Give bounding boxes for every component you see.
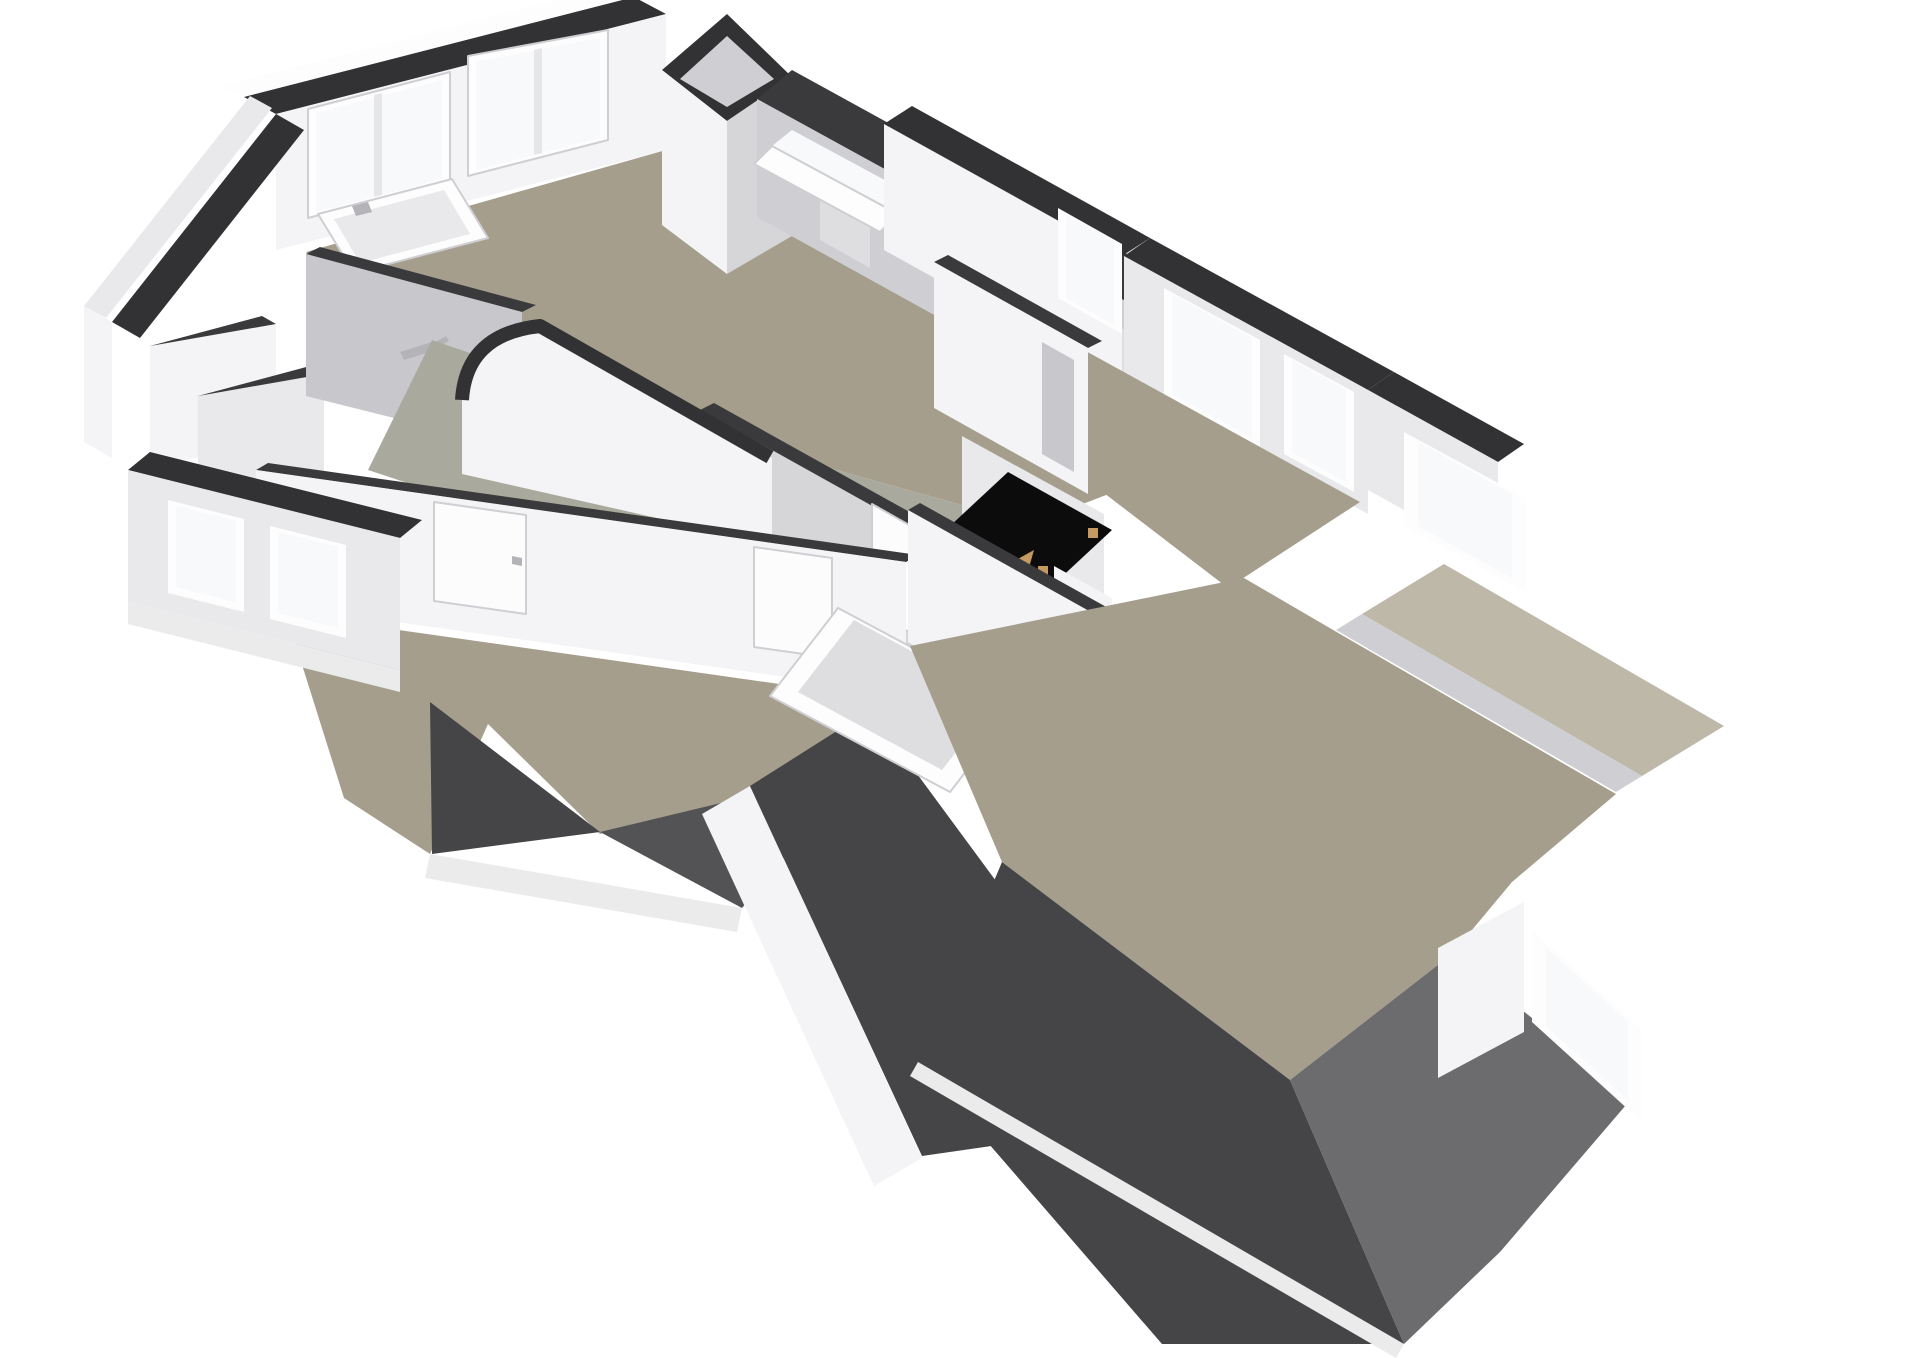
bedroom2-window-b-glass: [278, 532, 338, 628]
floorplan-scene-svg: [0, 0, 1920, 1358]
west-outer-face: [84, 306, 112, 458]
west-gable-cap: [112, 114, 304, 338]
bath-window-2-mullion: [534, 48, 542, 155]
bath-window-1-mullion: [374, 93, 382, 197]
bedroom1-door-opening: [1042, 342, 1074, 472]
floorplan-3d-render: [0, 0, 1920, 1358]
stair-hinge-1: [1088, 528, 1098, 538]
bedroom2-window-a-glass: [176, 506, 236, 602]
